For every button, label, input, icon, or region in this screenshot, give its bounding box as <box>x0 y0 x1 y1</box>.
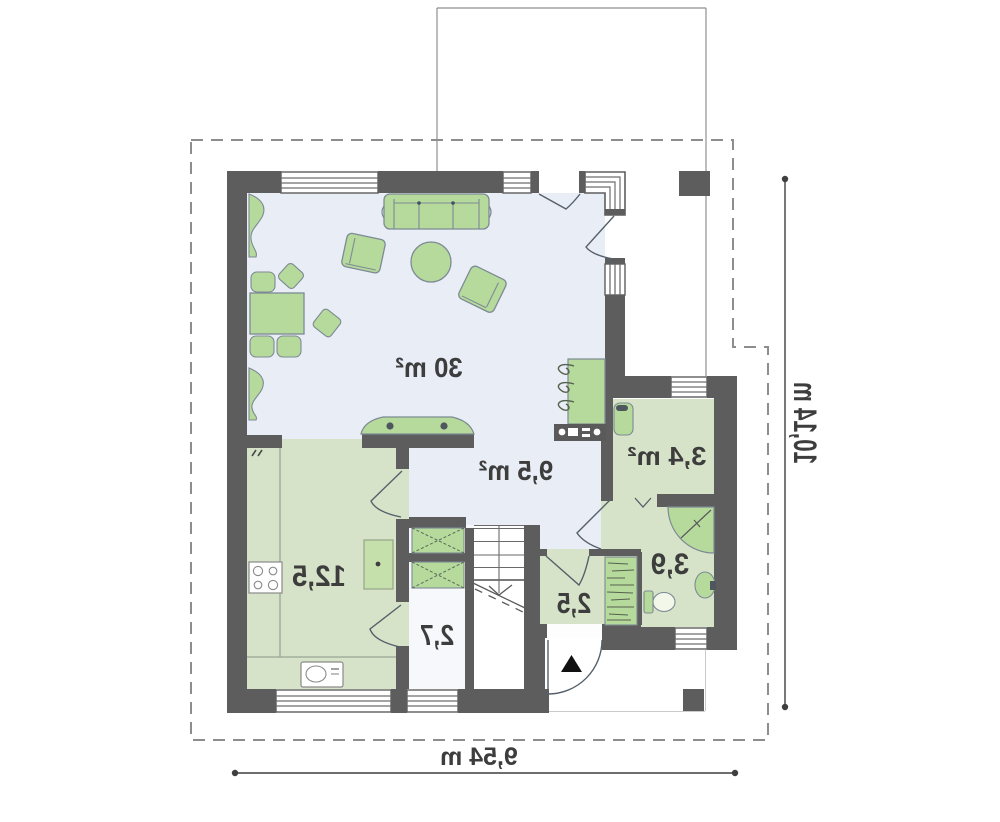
svg-text:3,4 m²: 3,4 m² <box>627 442 706 471</box>
svg-text:30 m²: 30 m² <box>395 352 462 383</box>
svg-text:9,5 m²: 9,5 m² <box>479 455 553 486</box>
svg-text:10,14 m: 10,14 m <box>787 382 823 464</box>
svg-text:12,5: 12,5 <box>292 560 346 593</box>
svg-text:3,9: 3,9 <box>651 548 689 581</box>
svg-text:2,7: 2,7 <box>420 619 454 651</box>
svg-text:9,54 m: 9,54 m <box>440 743 518 771</box>
svg-text:2,5: 2,5 <box>557 587 591 619</box>
